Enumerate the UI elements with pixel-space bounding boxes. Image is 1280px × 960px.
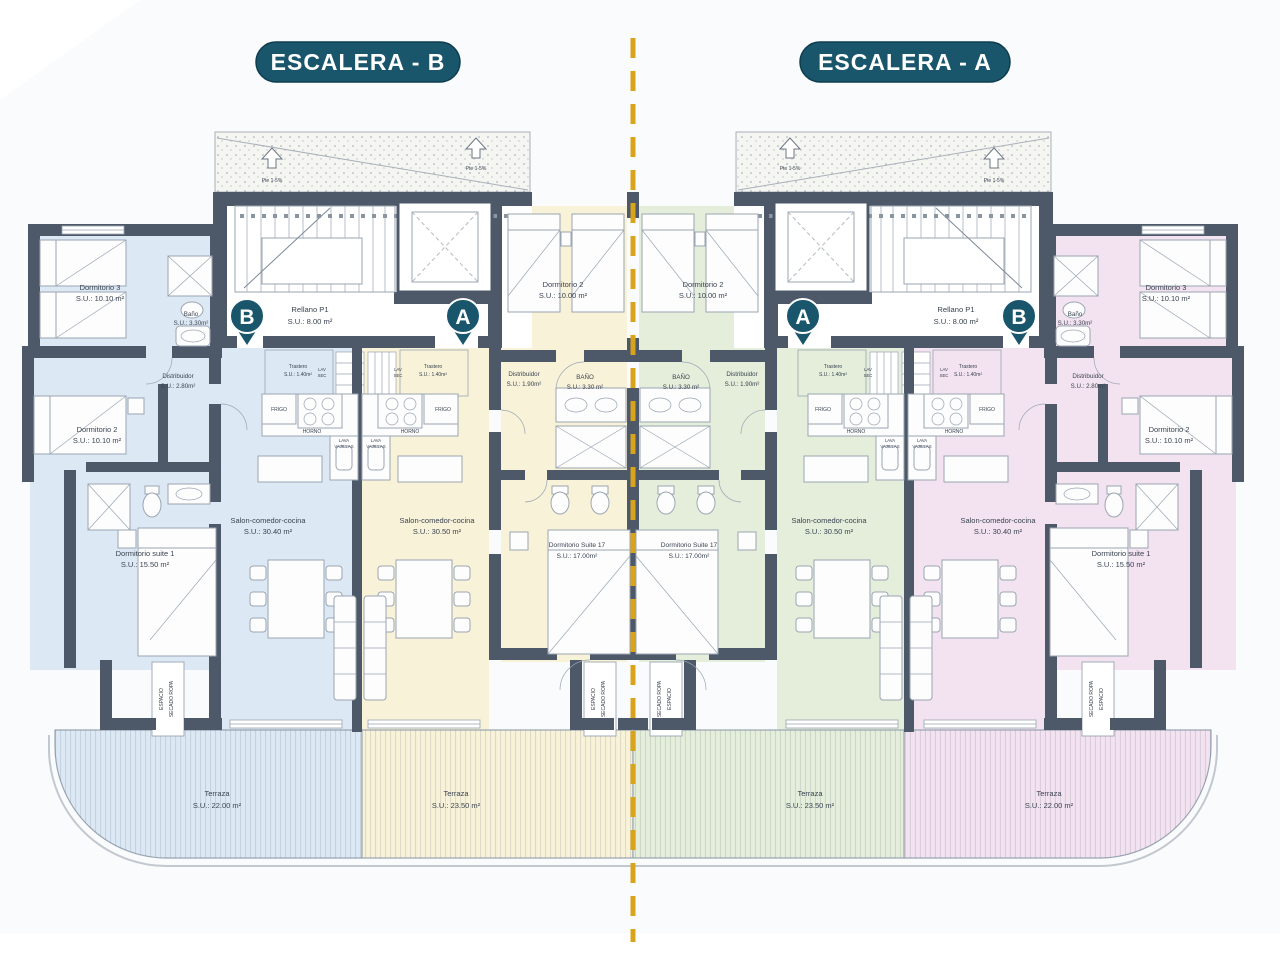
room-label: BAÑO bbox=[576, 374, 594, 381]
room-area: S.U.: 3.30 m² bbox=[663, 384, 699, 391]
drying-label: SECADO ROPA bbox=[601, 680, 607, 717]
room-label: Dormitorio Suite 17 bbox=[661, 542, 718, 549]
fixture-label: VAJILLAS bbox=[912, 444, 931, 449]
room-area: S.U.: 30.40 m² bbox=[974, 527, 1023, 536]
fixture-label: LAVA bbox=[371, 438, 381, 443]
room-label: Trastero bbox=[289, 364, 308, 370]
room-area: S.U.: 1.90m² bbox=[725, 381, 760, 388]
room-area: S.U.: 10.00 m² bbox=[679, 291, 728, 300]
room-label: Terraza bbox=[204, 789, 230, 798]
stair-badge-letter: A bbox=[455, 306, 470, 329]
fixture-label: SEC bbox=[864, 373, 873, 378]
fixture-label: LAV bbox=[318, 367, 326, 372]
landing-label: Rellano P1 bbox=[291, 305, 328, 314]
room-label: BAÑO bbox=[672, 374, 690, 381]
drying-label: ESPACIO bbox=[1099, 688, 1105, 710]
room-area: S.U.: 10.10 m² bbox=[1142, 294, 1191, 303]
room-label: Dormitorio 2 bbox=[683, 280, 724, 289]
room-area: S.U.: 3.30 m² bbox=[567, 384, 603, 391]
landing-area: S.U.: 8.00 m² bbox=[934, 317, 979, 326]
room-label: Distribuidor bbox=[508, 371, 539, 378]
room-area: S.U.: 1.40m² bbox=[419, 372, 447, 378]
fixture-label: LAV bbox=[394, 367, 402, 372]
title-escalera-a: ESCALERA - A bbox=[800, 42, 1010, 82]
room-area: S.U.: 3.30m² bbox=[1058, 320, 1093, 327]
fixture-label: VAJILLAS bbox=[880, 444, 899, 449]
drying-label: SECADO ROPA bbox=[1089, 680, 1095, 717]
half-escalera-b bbox=[22, 132, 633, 858]
fixture-label: HORNO bbox=[303, 429, 322, 435]
stair-badge-letter: B bbox=[239, 306, 254, 329]
room-area: S.U.: 10.10 m² bbox=[1145, 436, 1194, 445]
fixture-label: LAV bbox=[940, 367, 948, 372]
drying-label: SECADO ROPA bbox=[657, 680, 663, 717]
drying-label: ESPACIO bbox=[159, 688, 165, 710]
slope-label: Pte 1-5% bbox=[984, 178, 1005, 184]
room-area: S.U.: 30.50 m² bbox=[805, 527, 854, 536]
room-label: Dormitorio 2 bbox=[77, 425, 118, 434]
room-area: S.U.: 15.50 m² bbox=[1097, 560, 1146, 569]
room-label: Salon-comedor-cocina bbox=[230, 516, 306, 525]
room-label: Dormitorio 3 bbox=[80, 283, 121, 292]
fixture-label: FRIGO bbox=[979, 407, 995, 413]
room-label: Dormitorio suite 1 bbox=[1092, 549, 1151, 558]
fixture-label: LAVA bbox=[339, 438, 349, 443]
fixture-label: FRIGO bbox=[815, 407, 831, 413]
room-area: S.U.: 10.10 m² bbox=[73, 436, 122, 445]
room-area: S.U.: 3.30m² bbox=[174, 320, 209, 327]
room-label: Distribuidor bbox=[726, 371, 757, 378]
room-area: S.U.: 23.50 m² bbox=[432, 801, 481, 810]
fixture-label: VAJILLAS bbox=[334, 444, 353, 449]
room-label: Distribuidor bbox=[1072, 373, 1103, 380]
drying-label: ESPACIO bbox=[667, 688, 673, 710]
slope-label: Pte 1-5% bbox=[466, 166, 487, 172]
room-area: S.U.: 30.50 m² bbox=[413, 527, 462, 536]
room-area: S.U.: 30.40 m² bbox=[244, 527, 293, 536]
room-area: S.U.: 17.00m² bbox=[557, 553, 598, 560]
room-label: Trastero bbox=[824, 364, 843, 370]
room-area: S.U.: 1.40m² bbox=[819, 372, 847, 378]
room-label: Dormitorio 3 bbox=[1146, 283, 1187, 292]
room-label: Salon-comedor-cocina bbox=[791, 516, 867, 525]
room-label: Dormitorio 2 bbox=[543, 280, 584, 289]
fixture-label: SEC bbox=[394, 373, 403, 378]
room-label: Dormitorio Suite 17 bbox=[549, 542, 606, 549]
title-text: ESCALERA - B bbox=[271, 49, 446, 75]
title-text: ESCALERA - A bbox=[818, 49, 992, 75]
floor-plan-drawing: Dormitorio 3 S.U.: 10.10 m² Baño S.U.: 3… bbox=[0, 0, 1280, 960]
room-label: Trastero bbox=[959, 364, 978, 370]
room-area: S.U.: 22.00 m² bbox=[193, 801, 242, 810]
room-area: S.U.: 1.40m² bbox=[954, 372, 982, 378]
fixture-label: FRIGO bbox=[271, 407, 287, 413]
fixture-label: FRIGO bbox=[435, 407, 451, 413]
room-label: Dormitorio 2 bbox=[1149, 425, 1190, 434]
fixture-label: VAJILLAS bbox=[366, 444, 385, 449]
room-area: S.U.: 2.80m² bbox=[1071, 383, 1106, 390]
floor-plan-page: Dormitorio 3 S.U.: 10.10 m² Baño S.U.: 3… bbox=[0, 0, 1280, 960]
room-label: Salon-comedor-cocina bbox=[960, 516, 1036, 525]
fixture-label: LAVA bbox=[885, 438, 895, 443]
slope-label: Pte 1-5% bbox=[262, 178, 283, 184]
room-label: Dormitorio suite 1 bbox=[116, 549, 175, 558]
slope-label: Pte 1-5% bbox=[780, 166, 801, 172]
fixture-label: SEC bbox=[318, 373, 327, 378]
half-escalera-a bbox=[633, 132, 1244, 858]
room-label: Distribuidor bbox=[162, 373, 193, 380]
fixture-label: HORNO bbox=[945, 429, 964, 435]
drying-label: ESPACIO bbox=[591, 688, 597, 710]
room-label: Baño bbox=[1068, 311, 1083, 318]
room-label: Terraza bbox=[797, 789, 823, 798]
room-area: S.U.: 10.10 m² bbox=[76, 294, 125, 303]
landing-label: Rellano P1 bbox=[937, 305, 974, 314]
room-area: S.U.: 23.50 m² bbox=[786, 801, 835, 810]
fixture-label: HORNO bbox=[847, 429, 866, 435]
fixture-label: SEC bbox=[940, 373, 949, 378]
drying-label: SECADO ROPA bbox=[169, 680, 175, 717]
fixture-label: HORNO bbox=[401, 429, 420, 435]
room-label: Trastero bbox=[424, 364, 443, 370]
title-escalera-b: ESCALERA - B bbox=[256, 42, 460, 82]
landing-area: S.U.: 8.00 m² bbox=[288, 317, 333, 326]
room-area: S.U.: 1.90m² bbox=[507, 381, 542, 388]
room-label: Salon-comedor-cocina bbox=[399, 516, 475, 525]
room-label: Baño bbox=[184, 311, 199, 318]
stair-badge-letter: B bbox=[1011, 306, 1026, 329]
room-area: S.U.: 17.00m² bbox=[669, 553, 710, 560]
stair-badge-letter: A bbox=[795, 306, 810, 329]
room-area: S.U.: 1.40m² bbox=[284, 372, 312, 378]
room-label: Terraza bbox=[443, 789, 469, 798]
room-label: Terraza bbox=[1036, 789, 1062, 798]
room-area: S.U.: 2.80m² bbox=[161, 383, 196, 390]
room-area: S.U.: 22.00 m² bbox=[1025, 801, 1074, 810]
fixture-label: LAV bbox=[864, 367, 872, 372]
room-area: S.U.: 15.50 m² bbox=[121, 560, 170, 569]
fixture-label: LAVA bbox=[917, 438, 927, 443]
room-area: S.U.: 10.00 m² bbox=[539, 291, 588, 300]
